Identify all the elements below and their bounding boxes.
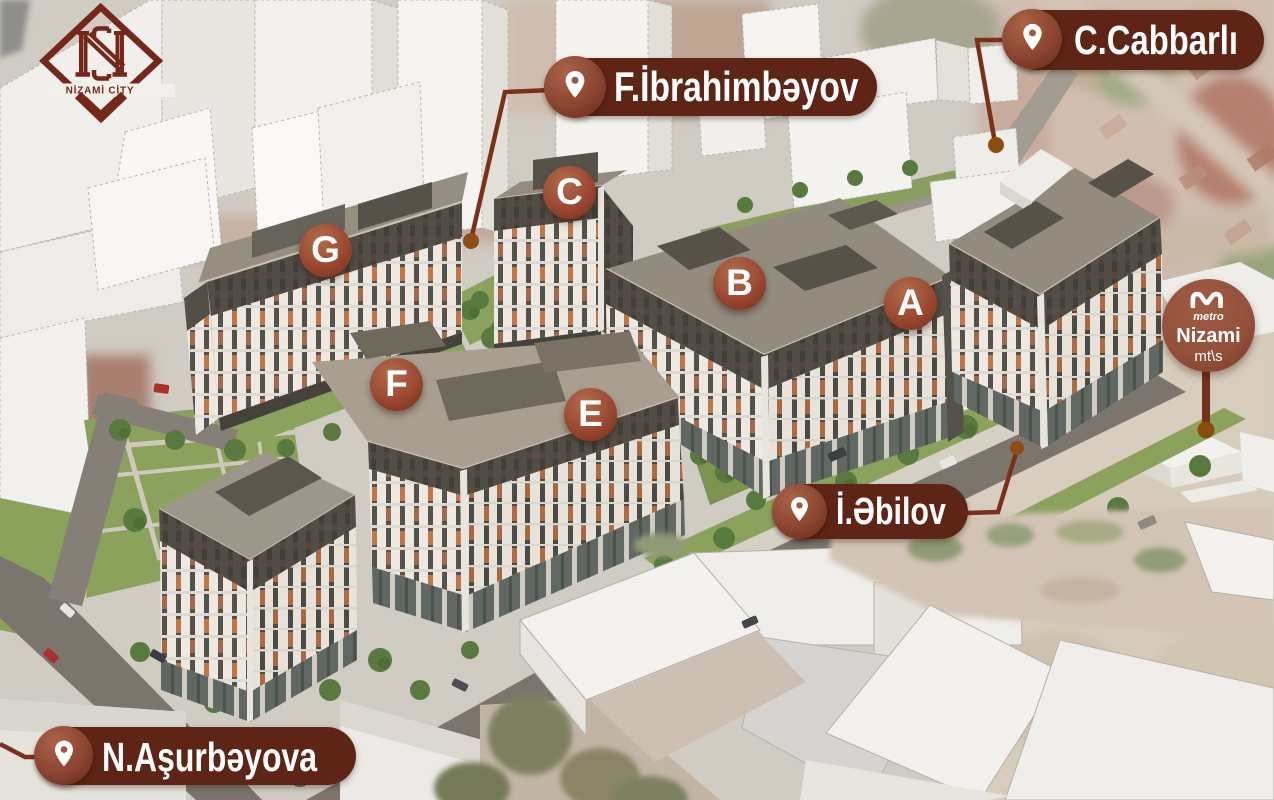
- svg-text:NİZAMİ CİTY: NİZAMİ CİTY: [66, 84, 135, 97]
